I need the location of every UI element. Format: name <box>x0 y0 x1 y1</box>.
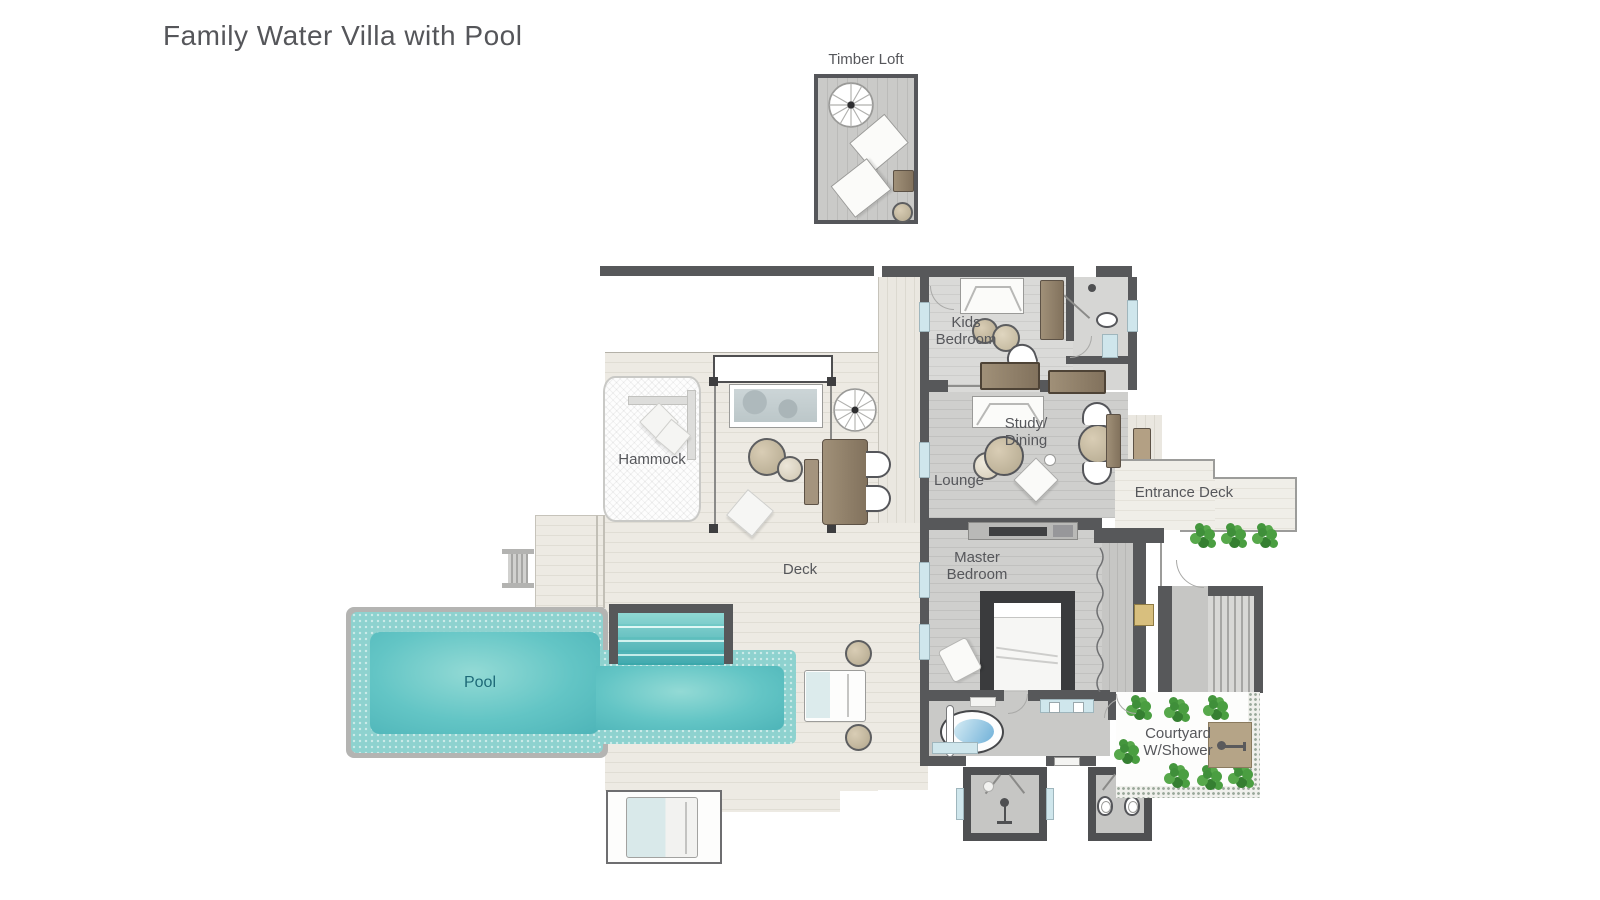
shower-head-icon <box>1088 284 1096 292</box>
window-strip <box>919 562 930 598</box>
window-strip <box>919 624 930 660</box>
toilet-icon <box>1097 796 1113 816</box>
plant-icon <box>1234 768 1243 777</box>
window-strip <box>956 788 964 820</box>
post <box>709 524 718 533</box>
kids-bed <box>960 278 1024 314</box>
tv-console <box>968 522 1078 540</box>
wall-segment <box>1094 528 1164 543</box>
deck-plank-divider <box>596 515 598 608</box>
courtyard-label: Courtyard W/Shower <box>1128 726 1228 760</box>
vanity-sink <box>932 742 978 754</box>
pool-steps <box>618 613 724 665</box>
stair-landing <box>1172 586 1208 693</box>
post <box>827 377 836 386</box>
deck-step <box>722 790 840 812</box>
post <box>827 524 836 533</box>
pouf <box>845 724 872 751</box>
pool-water <box>596 666 784 730</box>
window-strip <box>919 302 930 332</box>
page-title: Family Water Villa with Pool <box>163 20 522 52</box>
wall-segment <box>1096 266 1132 277</box>
edge-line <box>1213 459 1215 479</box>
pouf <box>845 640 872 667</box>
wall-segment <box>1254 586 1263 693</box>
wall-segment <box>920 756 966 766</box>
toilet-icon <box>1096 312 1118 328</box>
kids-bedroom-label: Kids Bedroom <box>930 315 1002 349</box>
lounge-label: Lounge <box>925 473 993 490</box>
timber-loft-label: Timber Loft <box>810 52 922 69</box>
vanity-sink <box>1040 699 1094 713</box>
sideboard <box>1106 414 1121 468</box>
plant-icon <box>1209 700 1218 709</box>
deck-label: Deck <box>770 562 830 579</box>
window-strip <box>1127 300 1138 332</box>
edge-line <box>1213 477 1297 479</box>
bench <box>1054 757 1080 766</box>
shelf <box>970 697 996 707</box>
loft-side-table <box>893 170 914 192</box>
pebble-border <box>1116 786 1260 798</box>
side-table <box>1044 454 1056 466</box>
wall-segment <box>1158 586 1172 693</box>
decor-ball <box>983 781 994 792</box>
sun-lounger <box>804 670 866 722</box>
wall-segment <box>600 266 874 276</box>
master-corridor-floor <box>1102 543 1133 692</box>
edge-line <box>1115 459 1215 461</box>
cabinet <box>980 362 1040 390</box>
cabinet <box>1048 370 1106 394</box>
plant-icon <box>1196 528 1205 537</box>
pool-label: Pool <box>420 674 540 692</box>
plant-icon <box>1170 768 1179 777</box>
dining-table <box>822 439 868 525</box>
hammock-frame <box>687 390 696 460</box>
wall-segment <box>920 380 948 392</box>
master-bedroom-label: Master Bedroom <box>934 550 1020 584</box>
edge-line <box>1295 477 1297 532</box>
sun-lounger <box>626 797 698 858</box>
window-strip <box>1046 788 1054 820</box>
wall-segment <box>1066 277 1074 341</box>
deck-plank-divider <box>603 515 605 608</box>
hammock-label: Hammock <box>605 452 699 469</box>
day-bed <box>729 384 823 428</box>
entry-stairs <box>1208 596 1254 693</box>
wall-segment <box>1128 277 1137 390</box>
vanity-sink <box>1102 334 1118 358</box>
deck-area <box>535 515 605 608</box>
curtain-icon <box>1094 546 1106 692</box>
toilet-icon <box>1124 796 1140 816</box>
day-bed-canopy <box>713 355 833 383</box>
spiral-staircase-icon <box>833 388 877 432</box>
wardrobe <box>1040 280 1064 340</box>
shower-head-icon <box>1004 806 1006 822</box>
plant-icon <box>1227 528 1236 537</box>
ladder-icon <box>508 554 528 583</box>
bench <box>804 459 819 505</box>
wall-segment <box>1208 586 1254 596</box>
study-dining-label: Study/ Dining <box>990 416 1062 450</box>
loft-stool <box>892 202 913 223</box>
door-swing-icon <box>1176 560 1204 588</box>
plant-icon <box>1203 770 1212 779</box>
wall-segment <box>882 266 1074 277</box>
stool <box>1134 604 1154 626</box>
day-bed-frame <box>714 384 716 525</box>
floor-plan-canvas: Family Water Villa with Pool Timber Loft… <box>0 0 1600 900</box>
plant-icon <box>1170 702 1179 711</box>
post <box>709 377 718 386</box>
entrance-deck-label: Entrance Deck <box>1128 485 1240 502</box>
master-bed <box>994 603 1061 690</box>
plant-icon <box>1258 528 1267 537</box>
pool-steps-wall <box>609 604 618 664</box>
spiral-staircase-icon <box>828 82 874 128</box>
pouf <box>777 456 803 482</box>
shower-head-icon <box>997 821 1012 824</box>
pool-steps-wall <box>724 604 733 664</box>
pool-steps-wall <box>609 604 733 613</box>
ladder-icon <box>502 583 534 588</box>
